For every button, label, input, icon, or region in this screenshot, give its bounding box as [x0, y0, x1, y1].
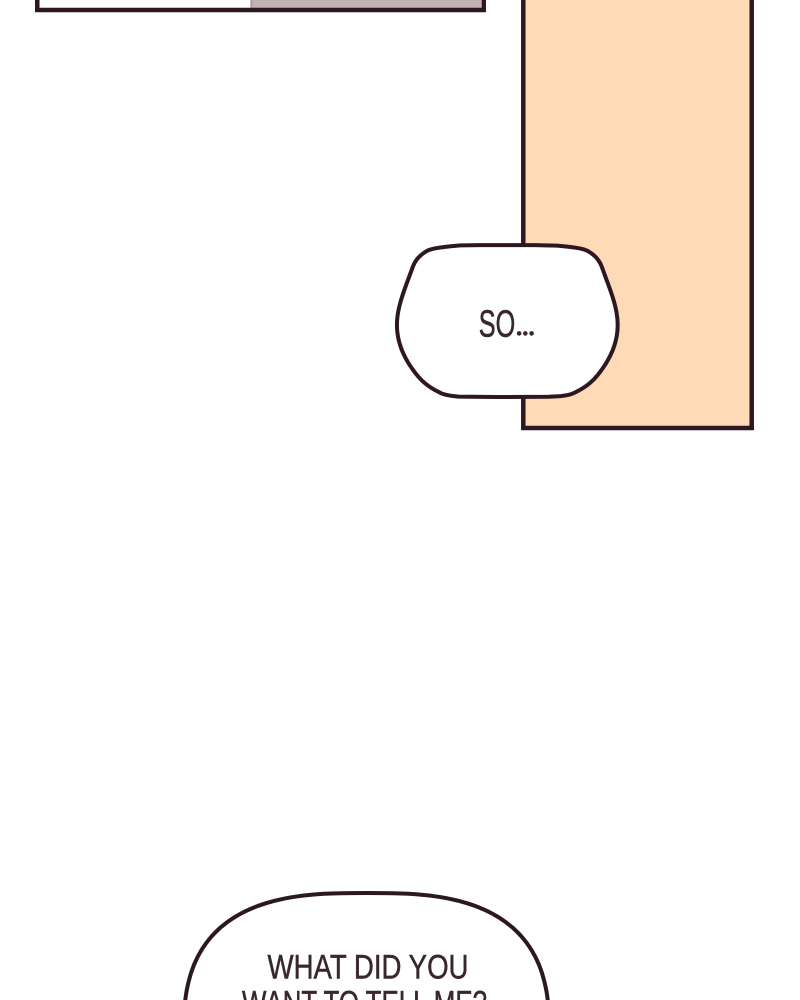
- svg-text:WANT TO TELL ME?: WANT TO TELL ME?: [242, 985, 487, 1000]
- svg-text:WHAT DID YOU: WHAT DID YOU: [268, 949, 469, 987]
- svg-text:SO: SO: [479, 304, 516, 346]
